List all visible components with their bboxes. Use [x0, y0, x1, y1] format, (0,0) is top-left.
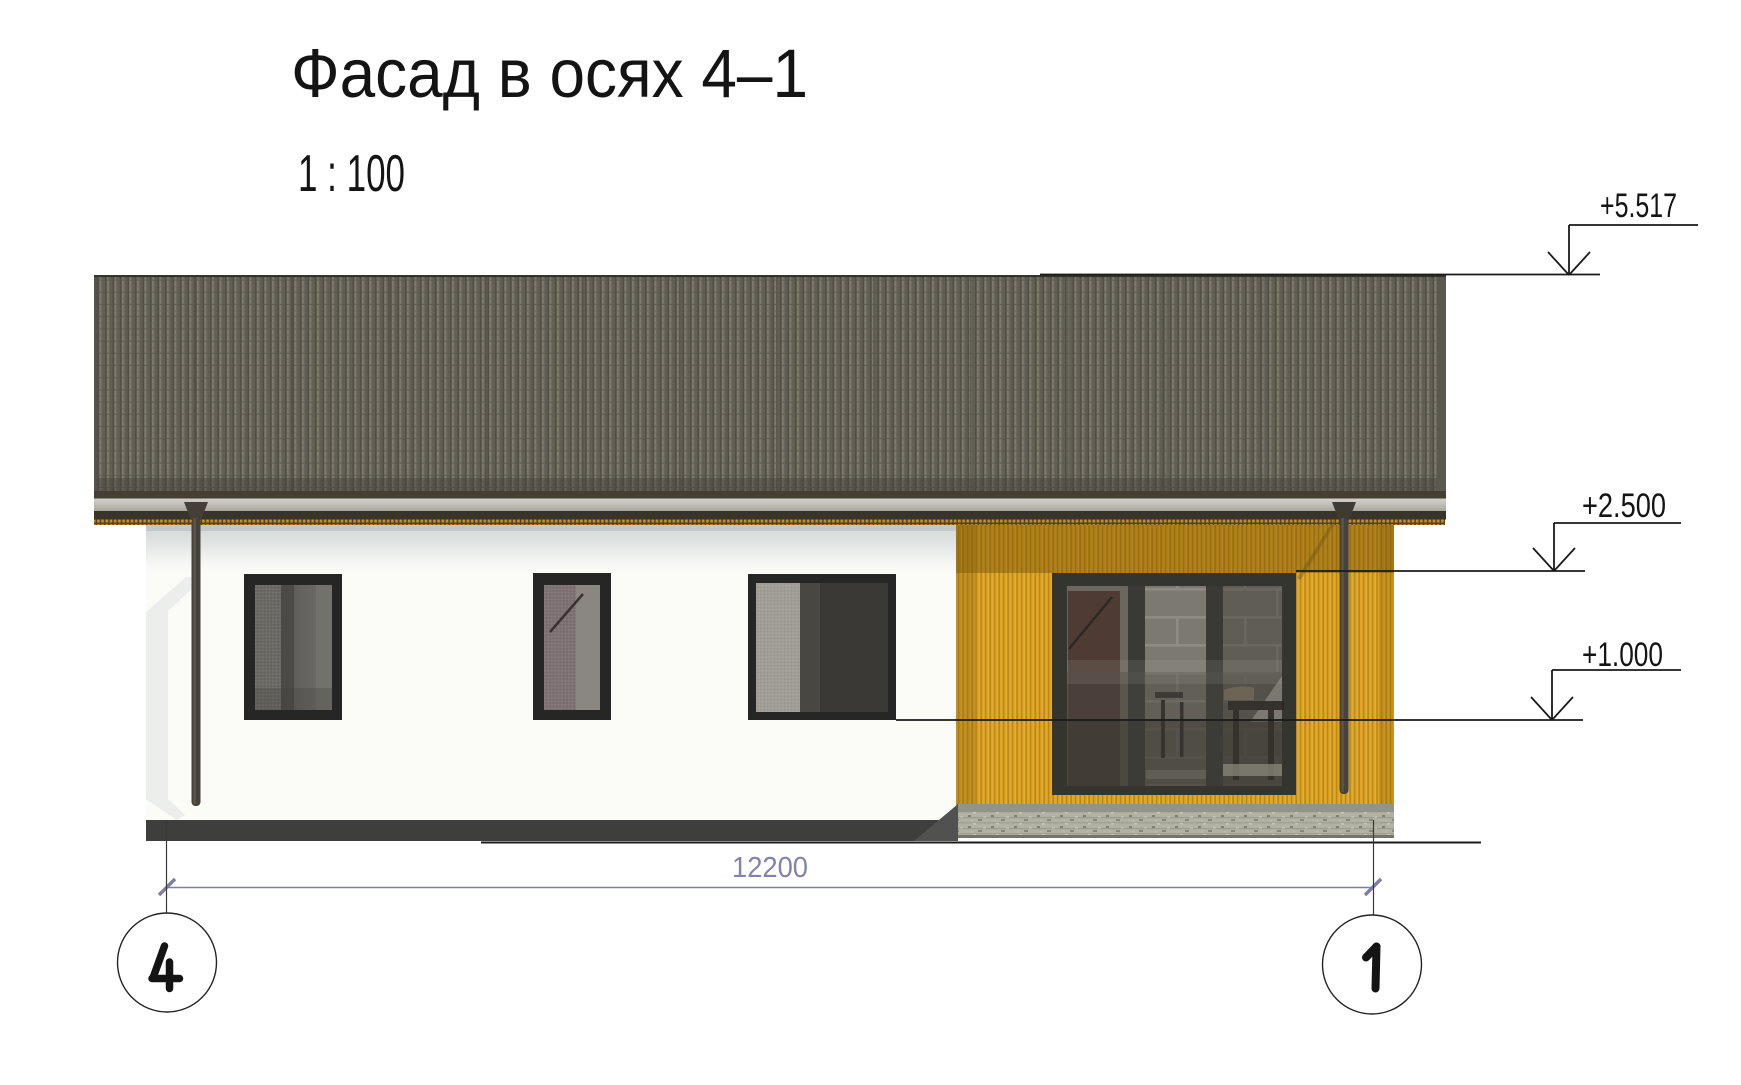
svg-text:+5.517: +5.517	[1600, 187, 1677, 225]
svg-text:+2.500: +2.500	[1582, 487, 1666, 525]
svg-text:Фасад в осях 4–1: Фасад в осях 4–1	[291, 35, 808, 112]
svg-text:+1.000: +1.000	[1582, 636, 1663, 674]
svg-text:12200: 12200	[732, 852, 808, 884]
svg-text:1 : 100: 1 : 100	[298, 145, 405, 203]
